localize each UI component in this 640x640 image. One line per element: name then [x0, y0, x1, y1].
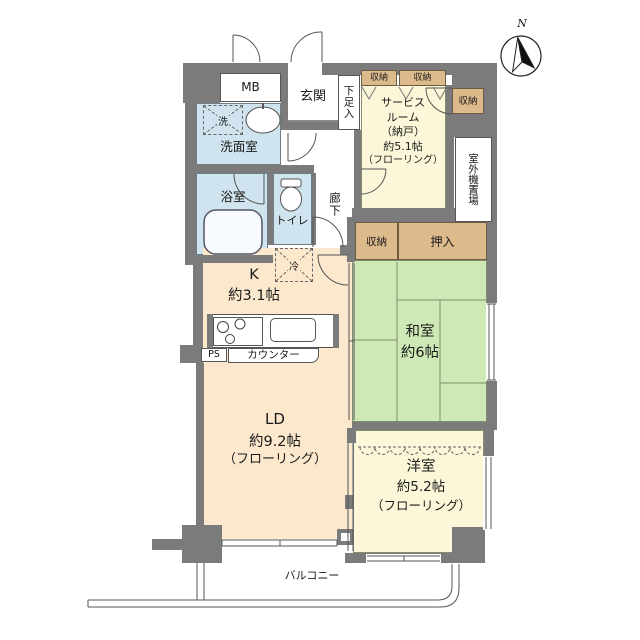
window-gap	[483, 456, 495, 530]
toilet-label: トイレ	[271, 214, 313, 227]
washroom-door-arc	[288, 133, 316, 161]
wall-segment	[333, 314, 339, 348]
service-room-floor-type: （フローリング）	[357, 154, 449, 169]
outdoor-unit-space: 室外機置場	[455, 137, 492, 222]
pipe-shaft-label: PS	[202, 349, 226, 361]
closet-right: 収納	[452, 88, 484, 114]
closet-hall-label: 収納	[366, 234, 387, 249]
wall-segment	[452, 113, 484, 137]
japanese-room-size: 約6帖	[389, 345, 451, 362]
service-room-name-2: ルーム	[357, 111, 449, 126]
wall-segment	[281, 120, 338, 130]
ld-floor-type: （フローリング）	[213, 452, 337, 468]
toilet-floor	[273, 173, 312, 245]
ld-name: LD	[241, 410, 309, 428]
fridge-label: 冷	[288, 258, 300, 273]
western-room-name: 洋室	[394, 459, 448, 476]
service-room-size: 約5.1帖	[357, 140, 449, 155]
service-room-name-3: （納戸）	[357, 125, 449, 140]
washer-label: 洗	[217, 113, 229, 128]
counter-front: カウンター	[228, 348, 319, 363]
bathroom-floor	[196, 173, 268, 255]
closet-hall: 収納	[355, 222, 398, 260]
closet-top-left: 収納	[361, 70, 397, 86]
window-gap	[366, 554, 441, 563]
pillar-box	[337, 529, 354, 545]
balcony-column	[182, 525, 222, 563]
wall-segment	[180, 345, 203, 363]
stove	[213, 317, 263, 346]
shoe-cabinet-label: 下足入	[342, 85, 357, 120]
fridge-space: 冷	[275, 248, 313, 282]
window-gap	[486, 303, 498, 381]
pipe-shaft: PS	[201, 348, 227, 362]
service-room-name-1: サービス	[357, 96, 449, 111]
wall-segment	[268, 173, 273, 245]
wall-segment	[347, 428, 356, 443]
bathroom-label: 浴室	[198, 189, 268, 204]
wall-segment	[196, 165, 314, 173]
wall-segment	[207, 314, 213, 348]
balcony-label: バルコニー	[271, 569, 353, 582]
wall-segment	[185, 75, 196, 265]
kitchen-size: 約3.1帖	[209, 288, 299, 305]
meter-box-label: MB	[220, 73, 281, 102]
compass-icon	[498, 33, 544, 79]
outdoor-unit-label: 室外機置場	[466, 153, 481, 206]
ld-balcony-window	[222, 540, 337, 546]
floorplan: MB 玄関 下足入 収納 収納 収納 室外機置場 サービス ルーム （納戸） 約…	[0, 0, 640, 640]
service-room-label: サービス ルーム （納戸） 約5.1帖 （フローリング）	[357, 96, 449, 169]
wall-segment	[345, 495, 354, 509]
kitchen-name: K	[231, 267, 277, 284]
closet-top-right: 収納	[399, 70, 446, 86]
mb-door-arc	[233, 35, 260, 62]
western-room-floor-type: （フローリング）	[359, 498, 483, 513]
kitchen-sink	[270, 318, 316, 342]
counter-label: カウンター	[229, 349, 318, 362]
washroom-label: 洗面室	[198, 139, 280, 154]
wall-segment	[347, 217, 355, 262]
ld-size: 約9.2帖	[237, 434, 313, 451]
oshiire-label: 押入	[430, 233, 454, 250]
western-room-size: 約5.2帖	[387, 479, 455, 495]
hallway-label: 廊下	[325, 182, 341, 226]
wall-segment	[193, 263, 203, 347]
wall-segment	[352, 422, 487, 430]
balcony-column	[452, 527, 485, 563]
wall-segment	[196, 363, 204, 528]
compass-north-label: N	[512, 17, 532, 30]
entrance-label: 玄関	[288, 89, 338, 105]
wall-segment	[152, 539, 182, 550]
front-door-arc	[291, 32, 322, 62]
japanese-room-name: 和室	[392, 324, 448, 341]
oshiire: 押入	[398, 222, 487, 260]
wall-segment	[193, 255, 273, 263]
washer-space: 洗	[203, 105, 243, 135]
wall-segment	[312, 173, 316, 245]
